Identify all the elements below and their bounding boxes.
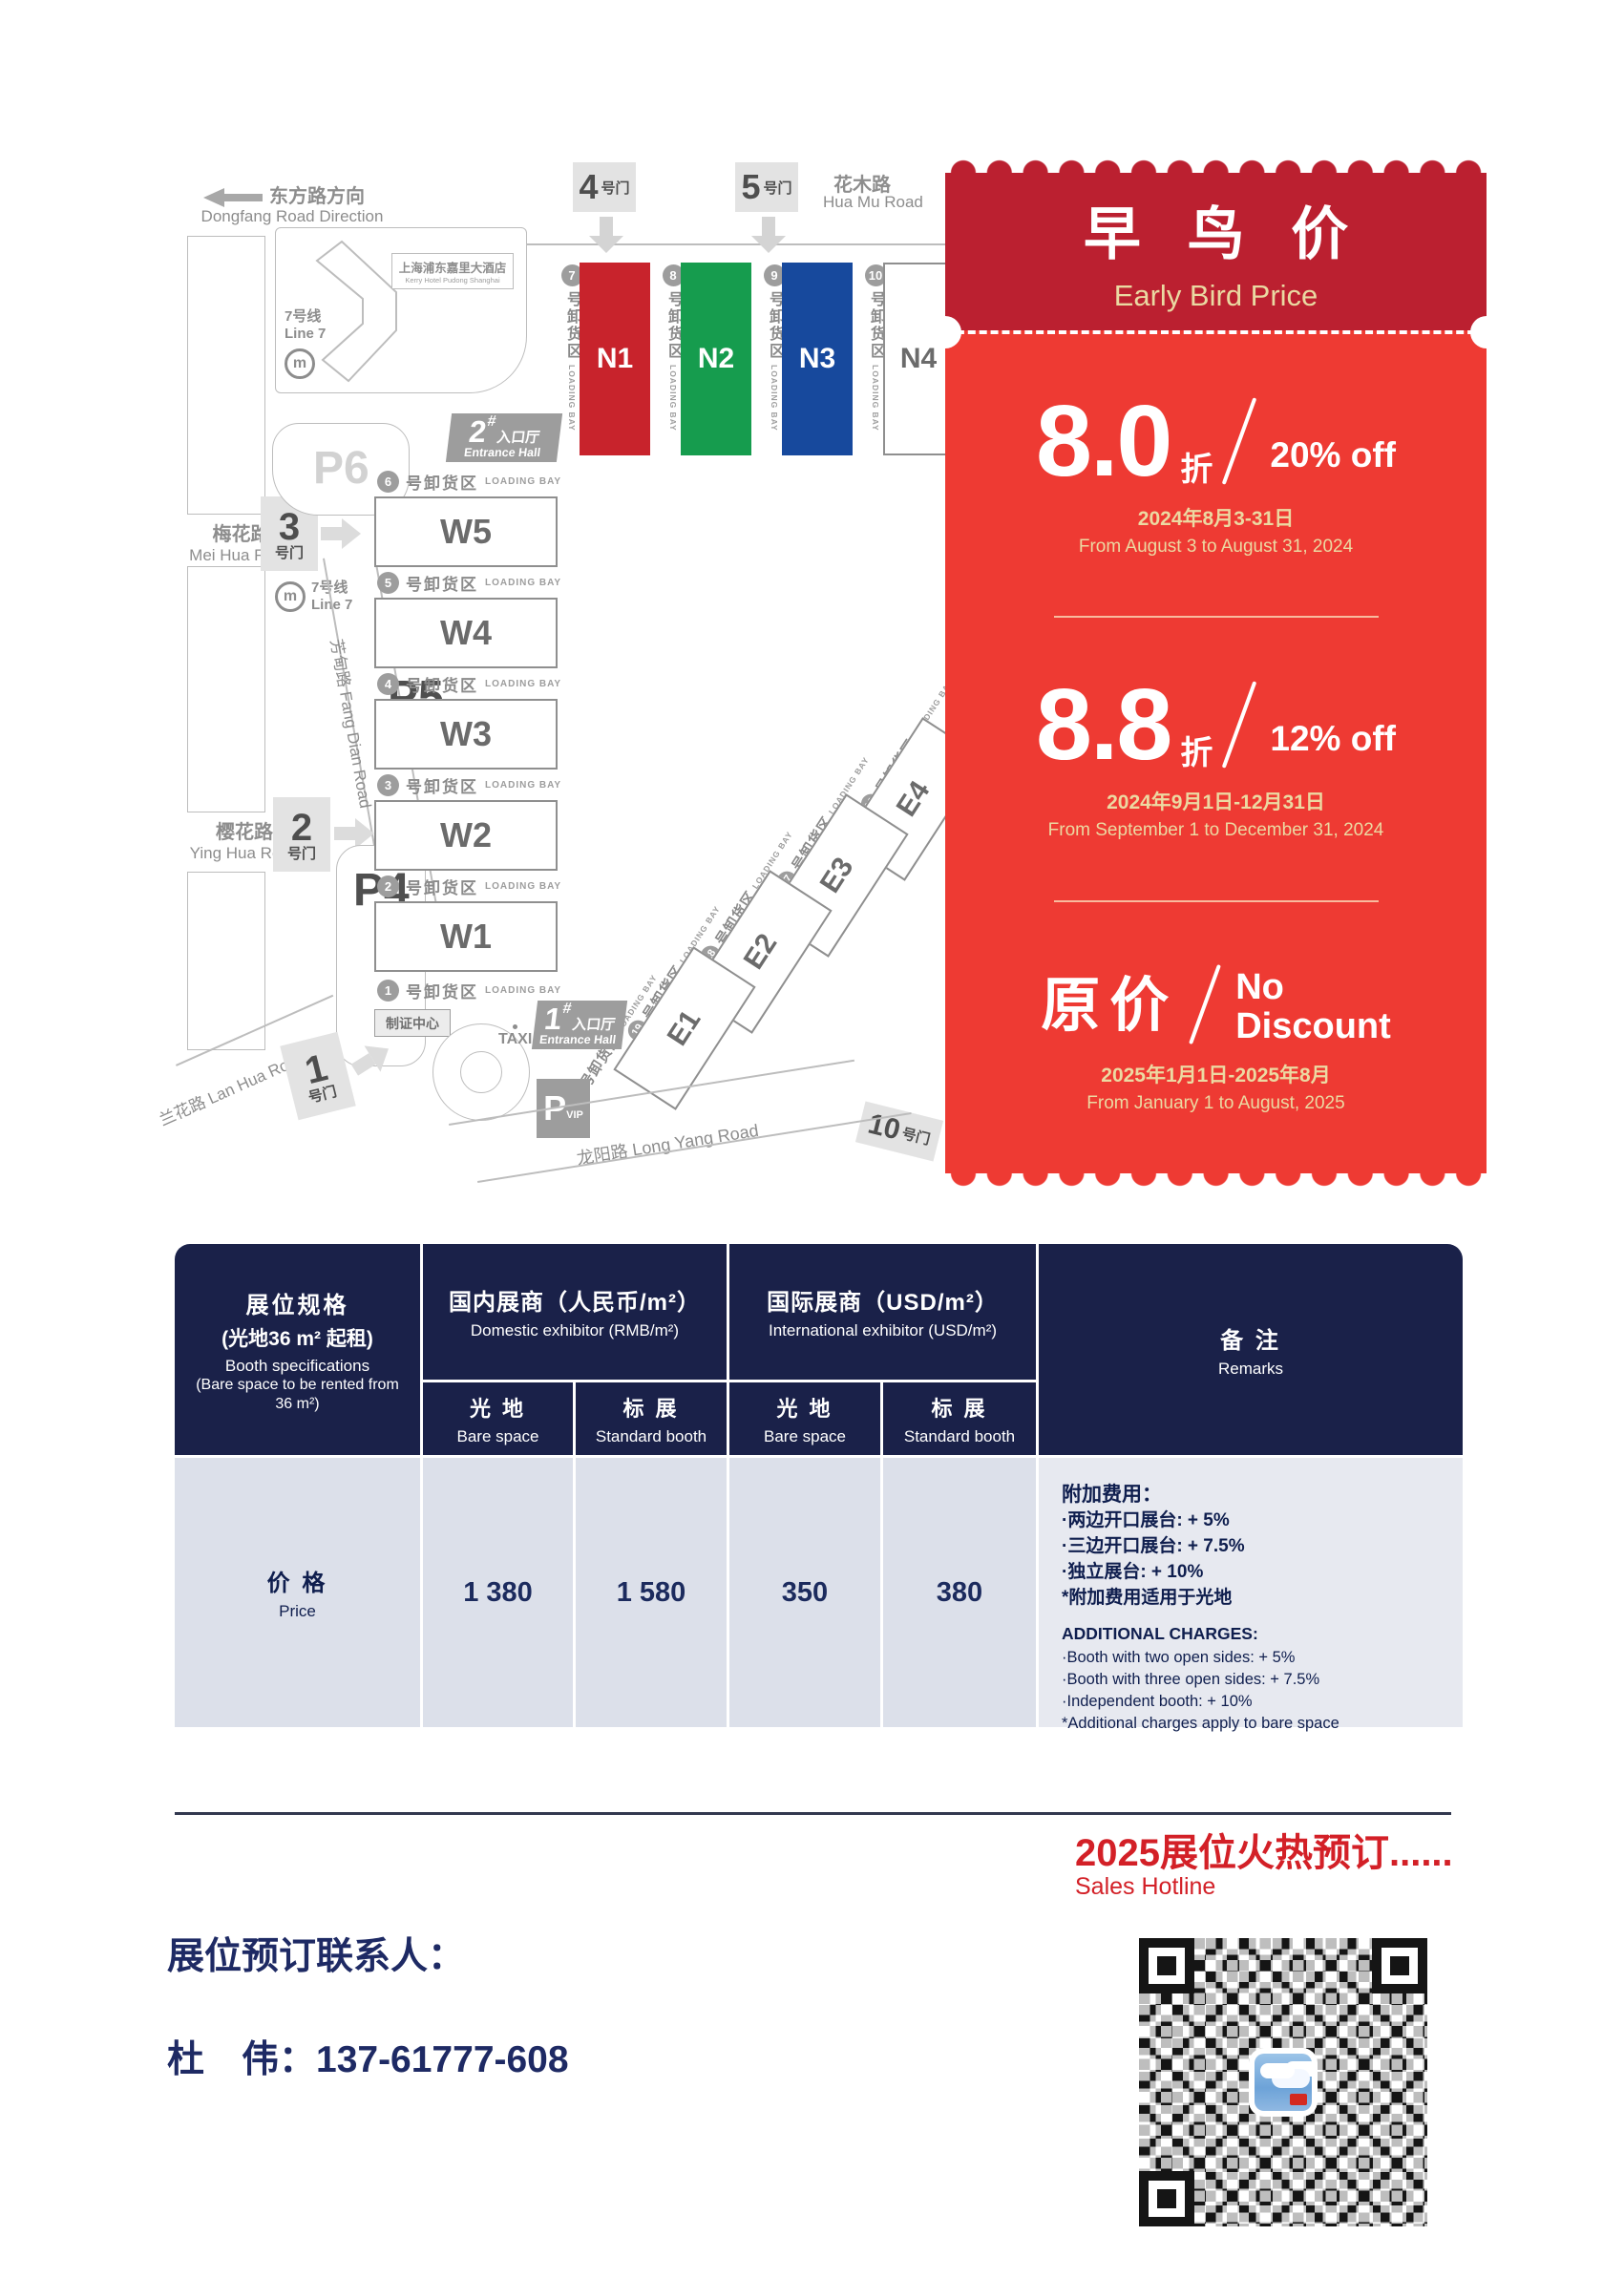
bay-number-badge: 5 (377, 572, 399, 594)
bay-label-en: LOADING BAY (485, 985, 561, 996)
entrance-1-hash: # (561, 1002, 572, 1017)
bay-label-en: LOADING BAY (485, 578, 561, 588)
hall-n2-label: N2 (698, 343, 734, 375)
qr-finder-icon (1139, 1938, 1194, 1993)
coupon-title-en: Early Bird Price (945, 279, 1487, 313)
row-header-price: 价 格 Price (175, 1458, 420, 1727)
map-top-road-line (485, 243, 950, 245)
bay-label-cn: 号卸货区 (406, 773, 478, 797)
bay-label-cn: 号卸货区 (406, 672, 478, 696)
bay-label-en: LOADING BAY (567, 365, 577, 432)
spec-cn2: (光地36 m² 起租) (221, 1323, 373, 1352)
loading-bay-5: 5 号卸货区 LOADING BAY (377, 571, 561, 594)
hotel-name-en: Kerry Hotel Pudong Shanghai (394, 276, 511, 285)
bay-number-badge: 1 (377, 980, 399, 1002)
remarks-cn-line: *附加费用适用于光地 (1062, 1586, 1232, 1612)
hall-n3: N3 (782, 263, 853, 455)
tier2-date-en: From September 1 to December 31, 2024 (945, 820, 1487, 841)
tier2-off: 12% off (1270, 719, 1396, 759)
price-domestic-bare: 1 380 (423, 1458, 573, 1727)
coupon-scallop-bottom (945, 1173, 1487, 1189)
remarks-cn-title: 附加费用： (1062, 1481, 1162, 1508)
venue-map: 东方路方向 Dongfang Road Direction 4 号门 5 号门 … (162, 110, 969, 1260)
coupon-notch-left (929, 316, 961, 348)
hall-w5-label: W5 (440, 512, 492, 552)
loading-bay-1: 1 号卸货区 LOADING BAY (377, 979, 561, 1002)
bay-label-cn: 号卸货区 (406, 979, 478, 1002)
entrance-1-cn: 入口厅 (571, 1018, 616, 1032)
coupon-header: 早 鸟 价 Early Bird Price (945, 173, 1487, 330)
hall-w2: W2 (374, 800, 558, 871)
tier-divider (1054, 900, 1379, 902)
city-block (187, 872, 265, 1050)
bay-number-badge: 3 (377, 774, 399, 796)
slash-divider-icon (1189, 964, 1221, 1044)
remarks-en-title: ADDITIONAL CHARGES: (1062, 1621, 1258, 1646)
metro-station-south: m 7号线 Line 7 (275, 580, 352, 614)
hotline-title: 2025展位火热预订...... (1075, 1822, 1453, 1877)
coupon-body: 8.0 折 20% off 2024年8月3-31日 From August 3… (945, 330, 1487, 1173)
slash-divider-icon (1222, 681, 1257, 769)
metro-logo-icon: m (285, 348, 315, 379)
hall-w4-label: W4 (440, 613, 492, 653)
discount-tier-1: 8.0 折 20% off 2024年8月3-31日 From August 3… (945, 393, 1487, 558)
entrance-hall-1: 1 # 入口厅 Entrance Hall (532, 1001, 627, 1049)
hall-w1: W1 (374, 901, 558, 972)
metro-logo-icon: m (275, 581, 306, 612)
gate-10-suffix: 号门 (900, 1123, 933, 1150)
coupon-notch-right (1470, 316, 1503, 348)
taxi-text: TAXI (498, 1031, 532, 1047)
spec-cn: 展位规格 (246, 1286, 349, 1319)
price-international-bare: 350 (729, 1458, 880, 1727)
coupon-scallop-top (945, 158, 1487, 173)
tier1-off: 20% off (1270, 435, 1396, 475)
slash-divider-icon (1222, 397, 1257, 485)
bay-label-cn: 号卸货区 (406, 470, 478, 494)
tier2-unit: 折 (1180, 727, 1213, 773)
metro-station-north: 7号线 Line 7 m (285, 308, 326, 379)
hall-n4-label: N4 (900, 343, 937, 375)
entrance-2-cn: 入口厅 (496, 431, 540, 445)
spec-en: Booth specifications (225, 1357, 369, 1376)
gate-3-number: 3 (279, 508, 300, 546)
gate-4-number: 4 (579, 170, 598, 204)
remarks-en-line: ·Booth with two open sides: + 5% (1062, 1647, 1295, 1669)
hall-e1-label: E1 (662, 1004, 708, 1051)
parking-vip-sub: VIP (566, 1109, 583, 1121)
tier3-off: No Discount (1235, 968, 1391, 1046)
qr-icon-flag (1290, 2094, 1307, 2105)
hall-e3-label: E3 (814, 852, 861, 898)
remarks-body: 附加费用： ·两边开口展台: + 5% ·三边开口展台: + 7.5% ·独立展… (1039, 1458, 1463, 1727)
entrance-2-hash: # (486, 414, 496, 430)
road-fangdian: 芳甸路 Fang Dian Road (326, 637, 379, 810)
qr-icon-cloud (1260, 2063, 1295, 2078)
hall-w5: W5 (374, 496, 558, 567)
hall-w4: W4 (374, 598, 558, 668)
bay-number-badge: 6 (377, 471, 399, 493)
remarks-cn: 备 注 (1220, 1321, 1281, 1355)
loading-bay-4: 4 号卸货区 LOADING BAY (377, 672, 561, 695)
bay-label-en: LOADING BAY (871, 365, 880, 432)
left-arrow-icon (203, 188, 263, 207)
hall-e2-label: E2 (738, 928, 785, 975)
contact-phone: 杜 伟：137-61777-608 (167, 2030, 569, 2083)
tier1-unit: 折 (1180, 443, 1213, 490)
price-domestic-standard: 1 580 (576, 1458, 727, 1727)
hotline-subtitle: Sales Hotline (1075, 1873, 1215, 1901)
remarks-en-line: ·Independent booth: + 10% (1062, 1691, 1253, 1713)
gate-2-suffix: 号门 (287, 847, 316, 861)
bay-label-en: LOADING BAY (668, 365, 678, 432)
remarks-en: Remarks (1218, 1360, 1283, 1379)
roundabout-center (460, 1051, 502, 1093)
gate-1-number: 1 (302, 1048, 331, 1090)
road-huamu-en: Hua Mu Road (823, 193, 923, 212)
col-header-spec: 展位规格 (光地36 m² 起租) Booth specifications (… (175, 1244, 420, 1455)
gate-5-number: 5 (741, 170, 760, 204)
bay-label-cn: 号卸货区 (406, 875, 478, 898)
bay-label-en: LOADING BAY (770, 365, 779, 432)
tier3-off-line2: Discount (1235, 1006, 1391, 1046)
hotel-name-cn: 上海浦东嘉里大酒店 (394, 258, 511, 276)
city-block (187, 566, 265, 812)
price-international-standard: 380 (883, 1458, 1036, 1727)
bay-number-badge: 2 (377, 875, 399, 897)
hall-w2-label: W2 (440, 815, 492, 855)
price-cn: 价 格 (267, 1564, 328, 1597)
col-header-remarks: 备 注 Remarks (1039, 1244, 1463, 1455)
bay-label-en: LOADING BAY (485, 476, 561, 487)
discount-tier-2: 8.8 折 12% off 2024年9月1日-12月31日 From Sept… (945, 677, 1487, 841)
intl-cn: 国际展商（USD/m²） (767, 1283, 999, 1317)
tier3-date-cn: 2025年1月1日-2025年8月 (945, 1060, 1487, 1088)
gate-3-suffix: 号门 (275, 546, 304, 560)
tier2-value: 8.8 (1036, 677, 1171, 773)
contact-label: 展位预订联系人： (167, 1927, 465, 1980)
loading-bay-2: 2 号卸货区 LOADING BAY (377, 875, 561, 897)
gate-5-arrow-icon (751, 217, 786, 257)
tier1-date-cn: 2024年8月3-31日 (945, 503, 1487, 532)
domestic-cn: 国内展商（人民币/m²） (449, 1283, 701, 1317)
remarks-en-line: ·Booth with three open sides: + 7.5% (1062, 1669, 1319, 1691)
gate-3-arrow-icon (321, 518, 363, 549)
hall-w3-label: W3 (440, 714, 492, 754)
loading-bay-3: 3 号卸货区 LOADING BAY (377, 773, 561, 796)
bay-label-en: LOADING BAY (485, 780, 561, 791)
col-header-international: 国际展商（USD/m²） International exhibitor (US… (729, 1244, 1036, 1380)
entrance-hall-2: 2 # 入口厅 Entrance Hall (446, 413, 562, 462)
gate-5: 5 号门 (735, 162, 798, 212)
remarks-en-line: *Additional charges apply to bare space (1062, 1713, 1339, 1735)
subheader-bare-domestic: 光 地 Bare space (423, 1382, 573, 1455)
coupon-title-cn: 早 鸟 价 (945, 188, 1487, 271)
entrance-1-en: Entrance Hall (536, 1034, 620, 1046)
footer-divider (175, 1812, 1451, 1815)
bay-label-en: LOADING BAY (485, 679, 561, 689)
hall-n2: N2 (681, 263, 751, 455)
hall-n3-label: N3 (799, 343, 835, 375)
subheader-standard-domestic: 标 展 Standard booth (576, 1382, 727, 1455)
parking-p6-label: P6 (313, 442, 369, 495)
bay-number-badge: 4 (377, 673, 399, 695)
bay-label-en: LOADING BAY (485, 881, 561, 892)
metro-line7-en: Line 7 (285, 326, 326, 342)
intl-en: International exhibitor (USD/m²) (769, 1321, 997, 1340)
qr-finder-icon (1372, 1938, 1427, 1993)
city-block (187, 236, 265, 515)
gate-2-number: 2 (291, 809, 312, 847)
remarks-cn-line: ·两边开口展台: + 5% (1062, 1508, 1230, 1534)
badge-center: 制证中心 (374, 1009, 451, 1037)
tier-divider (1054, 616, 1379, 618)
loading-bay-6: 6 号卸货区 LOADING BAY (377, 470, 561, 493)
hall-w1-label: W1 (440, 917, 492, 957)
gate-4-arrow-icon (589, 217, 623, 257)
gate-2: 2 号门 (273, 797, 330, 872)
wechat-qr-code (1131, 1930, 1435, 2234)
road-dongfang-cn: 东方路方向 (269, 180, 365, 208)
tier3-off-line1: No (1235, 967, 1284, 1007)
hall-w3: W3 (374, 699, 558, 770)
qr-finder-icon (1139, 2171, 1194, 2226)
hall-n1-label: N1 (597, 343, 633, 375)
subheader-standard-international: 标 展 Standard booth (883, 1382, 1036, 1455)
entrance-2-number: 2 (467, 416, 488, 447)
tier2-date-cn: 2024年9月1日-12月31日 (945, 787, 1487, 815)
bay-label-cn: 号卸货区 (406, 571, 478, 595)
hall-n4: N4 (883, 263, 954, 455)
hotel-label: 上海浦东嘉里大酒店 Kerry Hotel Pudong Shanghai (391, 253, 514, 289)
remarks-cn-line: ·独立展台: + 10% (1062, 1560, 1203, 1586)
price-table: 展位规格 (光地36 m² 起租) Booth specifications (… (175, 1244, 1463, 1727)
entrance-2-en: Entrance Hall (450, 447, 555, 459)
gate-4: 4 号门 (573, 162, 636, 212)
gate-5-suffix: 号门 (764, 178, 792, 198)
flyer-page: 东方路方向 Dongfang Road Direction 4 号门 5 号门 … (0, 0, 1624, 2278)
remarks-cn-line: ·三边开口展台: + 7.5% (1062, 1534, 1245, 1560)
taxi-dot-icon (513, 1024, 517, 1029)
gate-10: 10 号门 (855, 1101, 943, 1161)
domestic-en: Domestic exhibitor (RMB/m²) (471, 1321, 679, 1340)
tier1-value: 8.0 (1036, 393, 1171, 490)
tier1-date-en: From August 3 to August 31, 2024 (945, 537, 1487, 558)
spec-en2: (Bare space to be rented from 36 m²) (188, 1376, 408, 1414)
col-header-domestic: 国内展商（人民币/m²） Domestic exhibitor (RMB/m²) (423, 1244, 727, 1380)
hall-n1: N1 (580, 263, 650, 455)
road-dongfang-en: Dongfang Road Direction (197, 207, 388, 226)
taxi-stand-label: TAXI (498, 1024, 532, 1048)
early-bird-coupon: 早 鸟 价 Early Bird Price 8.0 折 20% off 202… (945, 158, 1487, 1189)
tier3-date-en: From January 1 to August, 2025 (945, 1093, 1487, 1114)
subheader-bare-international: 光 地 Bare space (729, 1382, 880, 1455)
metro-line7-cn: 7号线 (285, 308, 321, 325)
tier3-value-cn: 原价 (1041, 974, 1178, 1039)
qr-center-icon (1251, 2050, 1316, 2115)
price-en: Price (279, 1602, 316, 1621)
gate-4-suffix: 号门 (601, 178, 630, 198)
discount-tier-3: 原价 No Discount 2025年1月1日-2025年8月 From Ja… (945, 960, 1487, 1114)
hall-e4-label: E4 (891, 775, 938, 822)
entrance-1-number: 1 (542, 1003, 563, 1034)
